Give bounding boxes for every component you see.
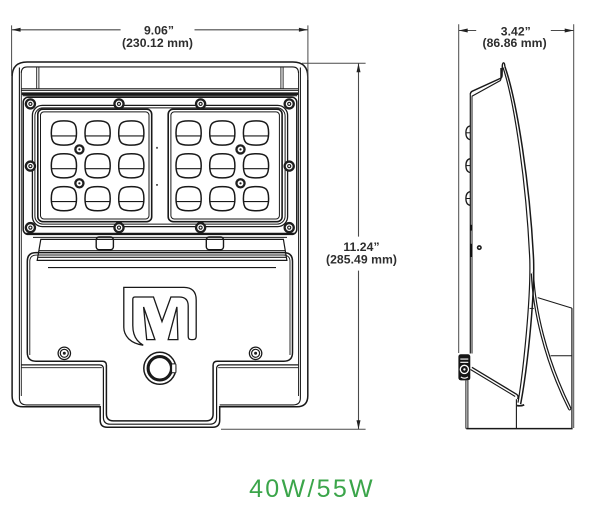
svg-text:(285.49 mm): (285.49 mm) [326,253,397,267]
svg-text:40W/55W: 40W/55W [249,475,375,503]
svg-text:(230.12 mm): (230.12 mm) [122,36,193,50]
svg-text:(86.86 mm): (86.86 mm) [483,36,547,50]
